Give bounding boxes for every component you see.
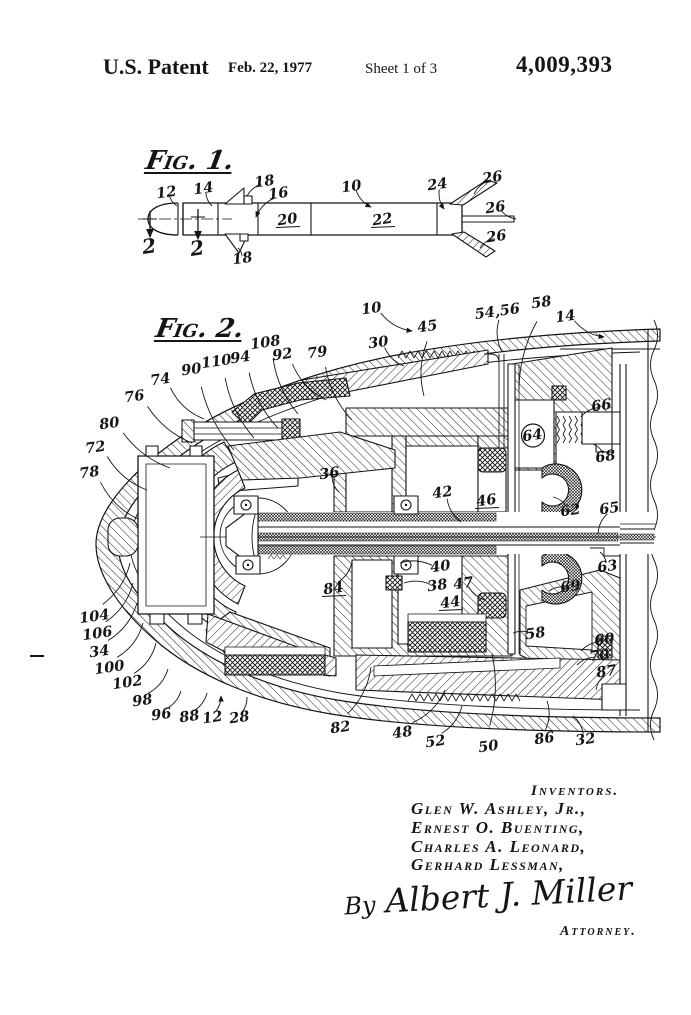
seal-38: [386, 576, 402, 590]
magnet-50: [408, 622, 486, 652]
ref-numeral: 58: [530, 293, 552, 313]
inventor-names: Glen W. Ashley, Jr., Ernest O. Buenting,…: [411, 800, 586, 875]
by-label: By: [344, 891, 377, 921]
ref-numeral: 62: [559, 501, 581, 521]
inventor-name: Glen W. Ashley, Jr.,: [411, 800, 586, 819]
ref-numeral: 12: [155, 183, 177, 203]
inventor-name: Charles A. Leonard,: [411, 838, 586, 857]
ref-numeral: 72: [84, 438, 106, 458]
drive-shaft: [200, 512, 656, 559]
ref-numeral: 18: [231, 249, 253, 269]
ref-numeral: 88: [178, 707, 200, 727]
ref-numeral: 14: [554, 307, 576, 327]
ref-numeral: 76: [123, 387, 145, 407]
ref-numeral: 47: [452, 574, 474, 594]
ref-numeral: 90: [180, 360, 202, 380]
patent-number: 4,009,393: [516, 52, 613, 78]
ref-numeral: 40: [429, 557, 451, 577]
ref-numeral: 82: [329, 718, 351, 738]
attorney-label: Attorney.: [560, 924, 637, 940]
ref-numeral: 102: [111, 672, 143, 693]
figure-2-drawing: 10453054,5658147992108941109074768072786…: [70, 285, 691, 765]
component-84: [352, 560, 392, 648]
inventors-heading: Inventors.: [531, 783, 619, 800]
ref-numeral: 94: [229, 348, 251, 368]
ref-numeral: 80: [98, 414, 120, 434]
ref-numeral: 63: [596, 557, 618, 577]
ref-numeral: 16: [267, 184, 289, 204]
ref-numeral: 26: [484, 227, 507, 247]
ref-numeral: 50: [477, 737, 499, 757]
ref-numeral: 106: [81, 623, 113, 644]
ref-numeral: 10: [360, 299, 382, 319]
patent-drawing-sheet: U.S. Patent Feb. 22, 1977 Sheet 1 of 3 4…: [0, 0, 691, 1015]
ref-numeral: 26: [480, 168, 503, 188]
leader-line: [170, 388, 204, 419]
inventor-name: Ernest O. Buenting,: [411, 819, 586, 838]
ref-numeral: 79: [306, 343, 328, 363]
ref-numeral: 78: [78, 463, 100, 483]
ref-numeral: 45: [416, 317, 438, 337]
figure-1-drawing: 12141816102426262620221822: [120, 140, 540, 275]
ref-numeral: 52: [424, 732, 446, 752]
ref-numeral: 24: [425, 175, 448, 195]
ref-numeral: 54,56: [474, 300, 521, 323]
leader-line: [134, 643, 156, 673]
ref-numeral: 14: [192, 179, 214, 199]
attorney-signature: ByAlbert J. Miller: [343, 868, 633, 922]
block-87: [602, 684, 626, 710]
plate-58: [508, 364, 515, 654]
ref-numeral: 2: [187, 235, 205, 261]
ref-numeral: 69: [559, 577, 581, 597]
leader-line: [381, 313, 412, 331]
ref-numeral: 36: [318, 464, 340, 484]
base-plates: [356, 655, 626, 710]
ref-numeral: 58: [524, 624, 546, 644]
magnet-block: [225, 655, 325, 675]
ref-numeral: 96: [150, 705, 172, 725]
sheet-indicator: Sheet 1 of 3: [365, 61, 437, 78]
signature-name: Albert J. Miller: [384, 868, 633, 920]
ref-numeral: 12: [201, 708, 223, 728]
patent-date: Feb. 22, 1977: [228, 60, 312, 77]
ref-numeral: 65: [598, 499, 620, 519]
ref-numeral: 74: [149, 370, 171, 390]
upper-assembly: [182, 348, 620, 516]
patent-title: U.S. Patent: [103, 54, 209, 80]
stud-68: [582, 412, 620, 444]
leader-line: [149, 669, 169, 693]
ref-numeral: 28: [227, 708, 250, 728]
ref-numeral: 110: [200, 351, 232, 372]
battery-case-78: [138, 456, 214, 614]
ref-numeral: 42: [431, 483, 453, 503]
ref-numeral: 26: [483, 198, 506, 218]
ref-numeral: 86: [533, 729, 555, 749]
margin-mark: [30, 655, 44, 657]
ref-numeral: 32: [574, 730, 596, 750]
leader-line: [117, 623, 143, 657]
ref-numeral: 66: [590, 396, 612, 416]
ref-numeral: 38: [426, 576, 448, 596]
ref-numeral: 68: [594, 447, 616, 467]
ref-numeral: 2: [139, 233, 157, 259]
threaded-section: [557, 416, 584, 443]
ref-numeral: 87: [595, 662, 617, 682]
ref-numeral: 30: [367, 333, 389, 353]
component-102: [108, 518, 138, 556]
ref-numeral: 10: [340, 177, 362, 197]
ref-numeral: 48: [391, 723, 413, 743]
top-fin: [225, 188, 244, 204]
